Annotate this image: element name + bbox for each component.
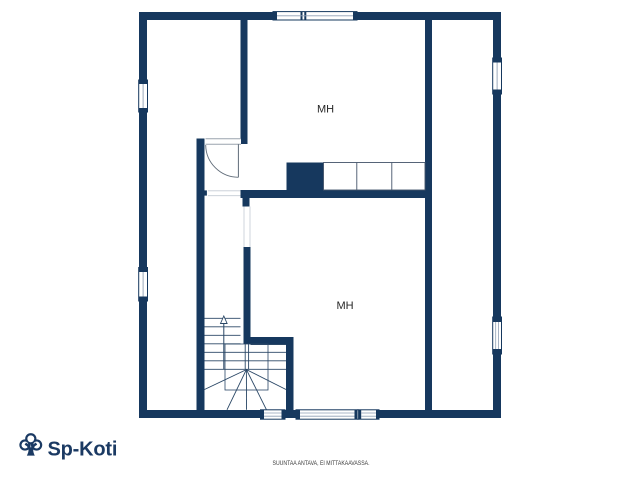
- svg-text:MH: MH: [317, 103, 334, 115]
- svg-text:SUUNTAA ANTAVA, EI MITTAKAAVAS: SUUNTAA ANTAVA, EI MITTAKAAVASSA.: [273, 460, 370, 467]
- svg-text:MH: MH: [336, 300, 353, 312]
- svg-text:Sp-Koti: Sp-Koti: [48, 438, 118, 460]
